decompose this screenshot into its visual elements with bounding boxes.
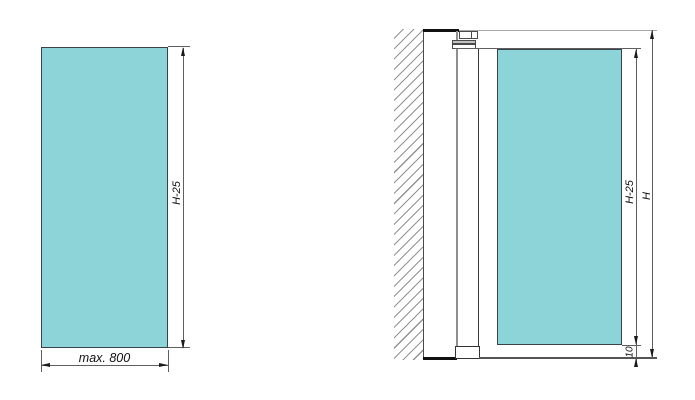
post-edge-line [456,31,457,357]
arrow-glass-bottom-side [634,336,638,345]
dim-line-width-front [41,365,168,366]
arrow-total-top [650,30,654,39]
ext-line-bottom-front [168,347,190,348]
ceiling-bracket [459,31,478,39]
width-front-text: max. 800 [79,351,130,365]
ext-line-top-front [168,46,190,47]
wall-hatch [394,29,424,360]
bottom-line [479,357,657,358]
dim-label-glass-height-side: H-25 [624,180,636,204]
total-height-text: H [641,192,653,200]
dim-label-width-front: max. 800 [41,351,168,365]
arrow-bottom-front [181,340,185,349]
top-extension-line [459,30,657,31]
glass-height-side-text: H-25 [624,180,636,204]
glass-panel-front [41,47,168,348]
glass-panel-side [497,49,622,345]
post-top-cap [423,29,459,32]
technical-drawing: H-25 max. 800 [0,0,695,400]
dim-line-height-front [183,48,184,348]
arrow-glass-top-side [634,49,638,58]
dim-label-total-height: H [641,192,653,200]
bottom-gap-text: 10 [625,346,636,357]
height-front-text: H-25 [171,181,183,205]
dim-line-glass-height-side [636,49,637,345]
arrow-top-front [181,47,185,56]
side-view: H-25 10 H [380,0,695,400]
post-bottom-cap [423,357,457,360]
bottom-profile-block [455,346,480,359]
arrow-bottom-gap [634,358,638,367]
arrow-total-bottom [650,349,654,358]
wall-edge-line [423,29,424,360]
front-view: H-25 max. 800 [0,0,260,400]
hinge-profile-line [478,49,479,346]
dim-label-bottom-gap: 10 [625,346,636,357]
dim-label-height-front: H-25 [171,181,183,205]
ceiling-bracket-divider [471,31,472,39]
